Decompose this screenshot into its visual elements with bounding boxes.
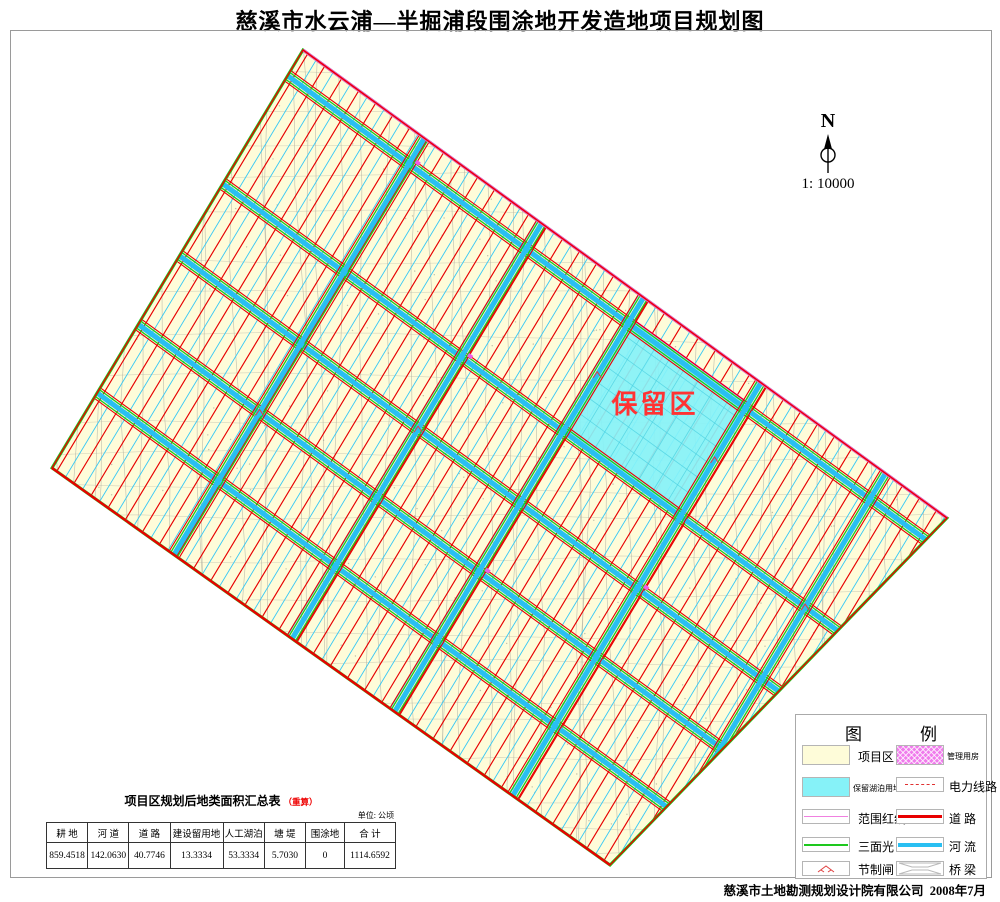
road-line-icon (896, 809, 944, 824)
project-area-swatch-icon (802, 745, 850, 765)
area-summary-table: 耕 地 河 道 道 路 建设留用地 人工湖泊 塘 堤 围涂地 合 计 859.4… (46, 822, 396, 869)
power-line-icon (896, 777, 944, 792)
map-scale: 1: 10000 (786, 176, 870, 193)
area-summary-note: （重算） (284, 797, 318, 807)
reserve-area-label: 保留区 (598, 384, 712, 421)
table-header-row: 耕 地 河 道 道 路 建设留用地 人工湖泊 塘 堤 围涂地 合 计 (47, 823, 396, 843)
footer-credit: 慈溪市土地勘测规划设计院有限公司 2008年7月 (723, 880, 986, 899)
area-summary-unit: 单位: 公顷 (46, 810, 394, 821)
area-summary-title: 项目区规划后地类面积汇总表 （重算） (46, 792, 396, 809)
management-building-swatch-icon (896, 745, 944, 765)
area-summary: 项目区规划后地类面积汇总表 （重算） 单位: 公顷 耕 地 河 道 道 路 建设… (46, 792, 396, 869)
north-label: N (808, 110, 848, 133)
control-gate-icon (802, 861, 850, 876)
planning-map-page: 慈溪市水云浦—半掘浦段围涂地开发造地项目规划图 N 1: 10000 保留区 图… (0, 0, 1000, 902)
bridge-icon (896, 861, 944, 876)
legend-box: 图 例 项目区 管理用房 保留湖泊用地 电力线路 范围红线 道 路 (795, 714, 987, 879)
compass-icon (813, 132, 843, 176)
legend-title: 图 例 (796, 720, 986, 745)
river-line-icon (896, 837, 944, 852)
boundary-redline-icon (802, 809, 850, 824)
threeface-line-icon (802, 837, 850, 852)
reserved-lake-swatch-icon (802, 777, 850, 797)
table-value-row: 859.4518 142.0630 40.7746 13.3334 53.333… (47, 843, 396, 869)
